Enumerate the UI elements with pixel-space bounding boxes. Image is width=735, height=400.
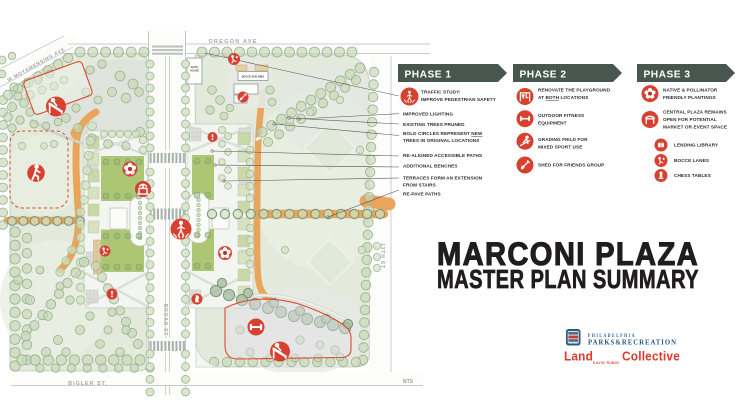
svg-text:RE-ALIGNED ACCESSIBLE PATHS: RE-ALIGNED ACCESSIBLE PATHS: [403, 153, 482, 158]
svg-text:LENDING LIBRARY: LENDING LIBRARY: [674, 143, 719, 148]
svg-text:PHASE 3: PHASE 3: [644, 70, 691, 81]
svg-text:PARKS&RECREATION: PARKS&RECREATION: [588, 338, 677, 347]
svg-text:OUTDOOR FITNESS: OUTDOOR FITNESS: [538, 113, 584, 118]
svg-text:DAVID RUBIN: DAVID RUBIN: [593, 361, 619, 365]
svg-text:IMPROVE PEDESTRIAN SAFETY: IMPROVE PEDESTRIAN SAFETY: [421, 97, 497, 102]
svg-text:EQUIPMENT: EQUIPMENT: [538, 120, 567, 125]
svg-text:Land: Land: [564, 350, 593, 364]
svg-text:MARKET OR EVENT SPACE: MARKET OR EVENT SPACE: [663, 125, 727, 130]
svg-text:GRADING FIELD FOR: GRADING FIELD FOR: [538, 137, 588, 142]
svg-text:FRIENDLY PLANTINGS: FRIENDLY PLANTINGS: [663, 95, 716, 100]
svg-text:BOCCE LANES: BOCCE LANES: [674, 158, 709, 163]
svg-text:BOLD CIRCLES REPRESENT NEW: BOLD CIRCLES REPRESENT NEW: [403, 131, 483, 136]
svg-text:TERRACES FORM AN EXTENSION: TERRACES FORM AN EXTENSION: [403, 176, 483, 181]
svg-text:Collective: Collective: [622, 350, 680, 364]
svg-text:IMPROVED LIGHTING: IMPROVED LIGHTING: [403, 112, 453, 117]
svg-text:MASTER PLAN SUMMARY: MASTER PLAN SUMMARY: [437, 264, 699, 294]
svg-text:NTS: NTS: [403, 379, 414, 385]
svg-text:13TH ST: 13TH ST: [379, 243, 385, 269]
svg-text:EXISTING TREES PRUNED: EXISTING TREES PRUNED: [403, 122, 465, 127]
svg-text:TRAFFIC STUDY:: TRAFFIC STUDY:: [421, 90, 461, 95]
svg-text:SHED FOR FRIENDS GROUP: SHED FOR FRIENDS GROUP: [538, 163, 604, 168]
svg-text:BROAD ST: BROAD ST: [162, 304, 168, 337]
svg-text:BOCCE BUILDING: BOCCE BUILDING: [242, 75, 265, 79]
svg-text:MIXED SPORT USE: MIXED SPORT USE: [538, 144, 582, 149]
svg-text:HOUSE: HOUSE: [190, 69, 199, 73]
svg-text:CENTRAL PLAZA REMAINS: CENTRAL PLAZA REMAINS: [663, 110, 727, 115]
svg-text:FROM STAIRS: FROM STAIRS: [403, 183, 436, 188]
svg-text:BIGLER ST.: BIGLER ST.: [68, 381, 108, 387]
svg-text:ADDITIONAL BENCHES: ADDITIONAL BENCHES: [403, 164, 457, 169]
svg-text:OREGON AVE: OREGON AVE: [208, 39, 257, 45]
svg-text:RENOVATE THE PLAYGROUND: RENOVATE THE PLAYGROUND: [538, 88, 611, 93]
svg-text:AT BOTH LOCATIONS: AT BOTH LOCATIONS: [538, 95, 588, 100]
svg-text:PHASE 1: PHASE 1: [405, 70, 452, 81]
svg-text:PHASE 2: PHASE 2: [520, 70, 567, 81]
svg-text:OPEN FOR POTENTIAL: OPEN FOR POTENTIAL: [663, 117, 717, 122]
svg-text:CHESS TABLES: CHESS TABLES: [674, 173, 711, 178]
svg-text:RE-PAVE PATHS: RE-PAVE PATHS: [403, 192, 441, 197]
svg-text:BATH: BATH: [191, 65, 198, 69]
svg-text:NATIVE & POLLINATOR: NATIVE & POLLINATOR: [663, 88, 718, 93]
svg-text:TREES IN ORIGINAL LOCATIONS: TREES IN ORIGINAL LOCATIONS: [403, 138, 479, 143]
